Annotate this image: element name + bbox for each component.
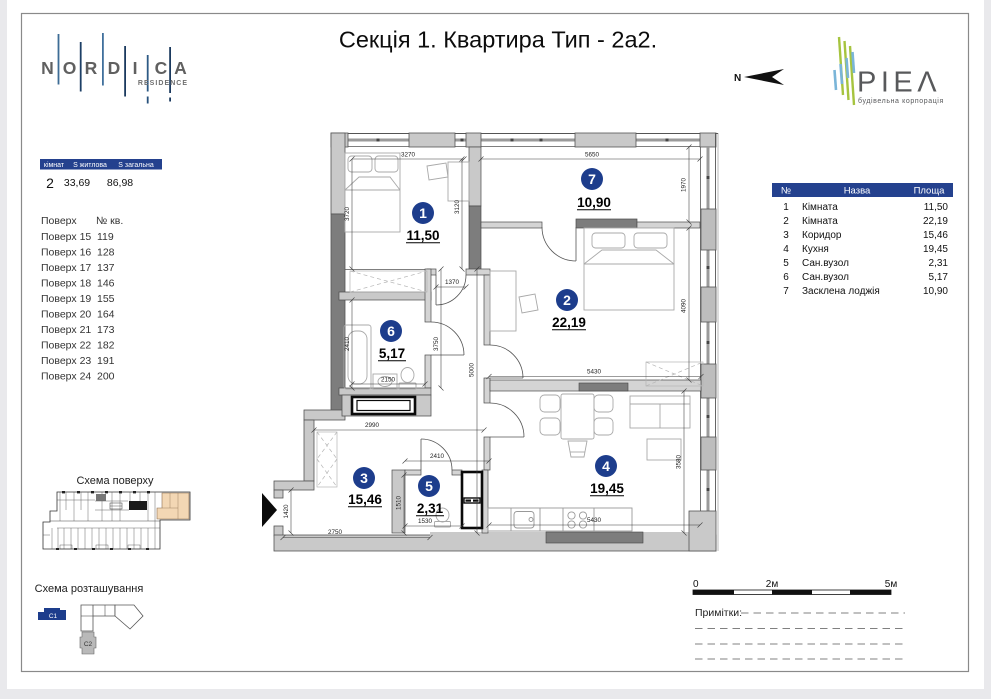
svg-text:2150: 2150 — [381, 377, 396, 384]
svg-text:Поверх 18: Поверх 18 — [41, 278, 91, 290]
svg-text:10,90: 10,90 — [577, 195, 611, 210]
svg-text:Кімната: Кімната — [802, 202, 838, 213]
svg-text:15,46: 15,46 — [923, 230, 948, 241]
svg-text:Поверх 21: Поверх 21 — [41, 324, 91, 336]
svg-text:Площа: Площа — [914, 186, 946, 197]
svg-text:4090: 4090 — [681, 299, 688, 314]
svg-text:1: 1 — [419, 205, 427, 221]
svg-text:3580: 3580 — [676, 455, 683, 470]
svg-text:5м: 5м — [885, 579, 898, 590]
svg-text:164: 164 — [97, 309, 115, 321]
svg-text:Коридор: Коридор — [802, 230, 842, 241]
svg-text:D: D — [108, 58, 121, 78]
svg-text:2: 2 — [563, 292, 571, 308]
svg-text:5,17: 5,17 — [379, 346, 405, 361]
svg-text:O: O — [63, 58, 77, 78]
svg-text:N: N — [734, 73, 741, 84]
svg-text:Схема поверху: Схема поверху — [76, 475, 154, 487]
svg-text:0: 0 — [693, 579, 699, 590]
svg-text:2410: 2410 — [344, 337, 351, 352]
svg-text:3750: 3750 — [433, 337, 440, 352]
svg-text:Поверх 24: Поверх 24 — [41, 371, 91, 383]
svg-text:A: A — [174, 58, 187, 78]
svg-text:2990: 2990 — [365, 422, 380, 429]
svg-text:Сан.вузол: Сан.вузол — [802, 258, 849, 269]
svg-text:5430: 5430 — [587, 517, 602, 524]
svg-text:Примітки:: Примітки: — [695, 607, 742, 619]
svg-text:4: 4 — [783, 244, 789, 255]
svg-text:РІЕΛ: РІЕΛ — [857, 67, 941, 99]
svg-text:200: 200 — [97, 371, 115, 383]
svg-text:№ кв.: № кв. — [96, 215, 123, 227]
svg-text:Поверх 20: Поверх 20 — [41, 309, 91, 321]
svg-text:S житлова: S житлова — [73, 162, 107, 169]
svg-text:Поверх 17: Поверх 17 — [41, 262, 91, 274]
svg-text:11,50: 11,50 — [406, 228, 439, 243]
svg-text:будівельна корпорація: будівельна корпорація — [858, 97, 944, 105]
svg-text:Секція 1. Квартира Тип - 2а2.: Секція 1. Квартира Тип - 2а2. — [339, 27, 657, 53]
svg-text:22,19: 22,19 — [552, 315, 586, 330]
svg-text:RESIDENCE: RESIDENCE — [138, 80, 188, 87]
svg-text:10,90: 10,90 — [923, 286, 948, 297]
svg-text:Кімната: Кімната — [802, 216, 838, 227]
svg-text:1530: 1530 — [418, 518, 433, 525]
svg-text:Засклена лоджія: Засклена лоджія — [802, 286, 880, 297]
svg-text:19,45: 19,45 — [590, 481, 624, 496]
svg-text:15,46: 15,46 — [348, 492, 382, 507]
svg-text:3: 3 — [360, 470, 368, 486]
svg-text:11,50: 11,50 — [924, 202, 949, 213]
svg-text:1370: 1370 — [445, 279, 460, 286]
svg-text:№: № — [781, 186, 791, 197]
svg-text:Поверх 19: Поверх 19 — [41, 293, 91, 305]
svg-text:2м: 2м — [766, 579, 779, 590]
svg-text:5: 5 — [425, 478, 433, 494]
svg-text:86,98: 86,98 — [107, 177, 133, 189]
svg-text:22,19: 22,19 — [923, 216, 948, 227]
svg-text:2,31: 2,31 — [417, 501, 444, 516]
svg-text:Поверх 15: Поверх 15 — [41, 231, 91, 243]
svg-text:33,69: 33,69 — [64, 177, 90, 189]
svg-text:1: 1 — [783, 202, 789, 213]
svg-text:1970: 1970 — [681, 178, 688, 193]
svg-text:2,31: 2,31 — [929, 258, 949, 269]
svg-text:I: I — [133, 58, 138, 78]
svg-text:3270: 3270 — [401, 152, 416, 159]
svg-text:5650: 5650 — [585, 152, 600, 159]
svg-text:Схема розташування: Схема розташування — [35, 583, 144, 595]
svg-text:R: R — [85, 58, 98, 78]
svg-text:173: 173 — [97, 324, 115, 336]
svg-text:C2: C2 — [84, 641, 93, 648]
svg-text:3720: 3720 — [344, 207, 351, 222]
svg-text:Поверх: Поверх — [41, 215, 77, 227]
svg-text:Кухня: Кухня — [802, 244, 829, 255]
svg-text:128: 128 — [97, 247, 115, 259]
svg-text:Сан.вузол: Сан.вузол — [802, 272, 849, 283]
svg-text:2: 2 — [46, 175, 54, 191]
svg-text:155: 155 — [97, 293, 115, 305]
svg-text:7: 7 — [588, 171, 596, 187]
svg-text:2410: 2410 — [430, 453, 445, 460]
svg-text:Назва: Назва — [844, 186, 871, 197]
svg-text:182: 182 — [97, 340, 115, 352]
svg-text:Поверх 22: Поверх 22 — [41, 340, 91, 352]
svg-text:C: C — [155, 58, 168, 78]
svg-text:1420: 1420 — [283, 504, 290, 519]
svg-text:5000: 5000 — [469, 363, 476, 378]
svg-text:2750: 2750 — [328, 529, 343, 536]
svg-text:6: 6 — [387, 323, 395, 339]
svg-text:3: 3 — [783, 230, 789, 241]
svg-text:5430: 5430 — [587, 369, 602, 376]
svg-text:137: 137 — [97, 262, 115, 274]
svg-text:1510: 1510 — [396, 496, 403, 511]
svg-text:5: 5 — [783, 258, 789, 269]
svg-text:4: 4 — [602, 458, 610, 474]
svg-text:5,17: 5,17 — [929, 272, 949, 283]
svg-text:кімнат: кімнат — [44, 161, 65, 169]
svg-text:119: 119 — [97, 231, 114, 243]
svg-text:Поверх 23: Поверх 23 — [41, 355, 91, 367]
svg-text:2: 2 — [783, 216, 789, 227]
svg-text:3120: 3120 — [454, 200, 461, 215]
svg-text:S загальна: S загальна — [118, 162, 154, 169]
svg-text:N: N — [41, 58, 54, 78]
svg-text:6: 6 — [783, 272, 789, 283]
svg-text:146: 146 — [97, 278, 115, 290]
svg-text:191: 191 — [97, 355, 115, 367]
svg-text:C1: C1 — [49, 613, 58, 620]
svg-text:7: 7 — [783, 286, 789, 297]
svg-text:Поверх 16: Поверх 16 — [41, 247, 91, 259]
svg-text:19,45: 19,45 — [923, 244, 948, 255]
